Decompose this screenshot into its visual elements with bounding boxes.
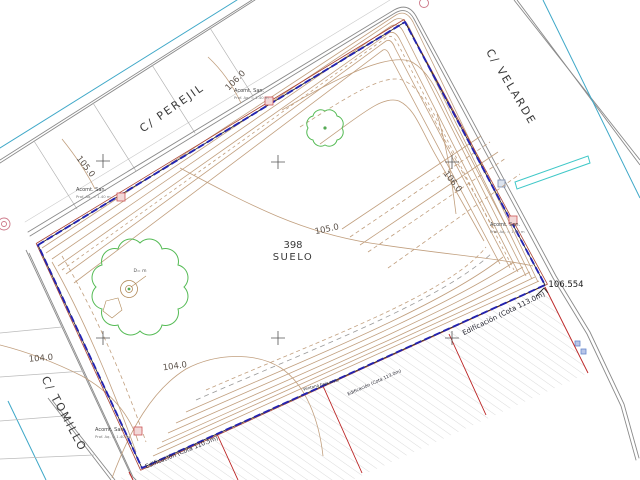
site-plan-canvas bbox=[0, 0, 640, 480]
service-connection-label-3: Acomt. San. Prof. Aq. = 1.40 m bbox=[490, 222, 525, 234]
parcel-number: 398 bbox=[283, 241, 302, 251]
service-connection-detail: Prof. Aq. = 1.40 m bbox=[76, 194, 111, 199]
street-tomillo-lines bbox=[0, 250, 136, 480]
service-connection-detail: Prof. Aq. = 1.40 m bbox=[490, 229, 525, 234]
tree-symbol-large bbox=[92, 239, 188, 335]
site-plan: C/ PEREJIL C/ VELARDE C/ TOMILLO 398 SUE… bbox=[0, 0, 640, 480]
service-connection-title: Acomt. San. bbox=[76, 187, 111, 193]
spot-elevation-label: 106.554 bbox=[548, 281, 583, 290]
service-connection-detail: Prof. Aq. = 1.40 m bbox=[234, 95, 269, 100]
service-connection-detail: Prof. Aq. = 1.40 m bbox=[95, 434, 130, 439]
service-connection-title: Acomt. San. bbox=[234, 88, 269, 94]
tree-diameter-label: D= m bbox=[133, 270, 146, 275]
utility-marker bbox=[575, 341, 580, 346]
service-connection-title: Acomt. San. bbox=[490, 222, 525, 228]
parcel-type-label: SUELO bbox=[273, 253, 314, 263]
contour-label-104-a: 104.0 bbox=[29, 354, 54, 365]
service-connection-label-4: Acomt. San. Prof. Aq. = 1.40 m bbox=[95, 427, 130, 439]
service-connection-title: Acomt. San. bbox=[95, 427, 130, 433]
culvert-rect bbox=[515, 156, 590, 189]
service-connection-label-2: Acomt. San. Prof. Aq. = 1.40 m bbox=[76, 187, 111, 199]
utility-marker bbox=[581, 349, 586, 354]
service-connection-label-1: Acomt. San. Prof. Aq. = 1.40 m bbox=[234, 88, 269, 100]
